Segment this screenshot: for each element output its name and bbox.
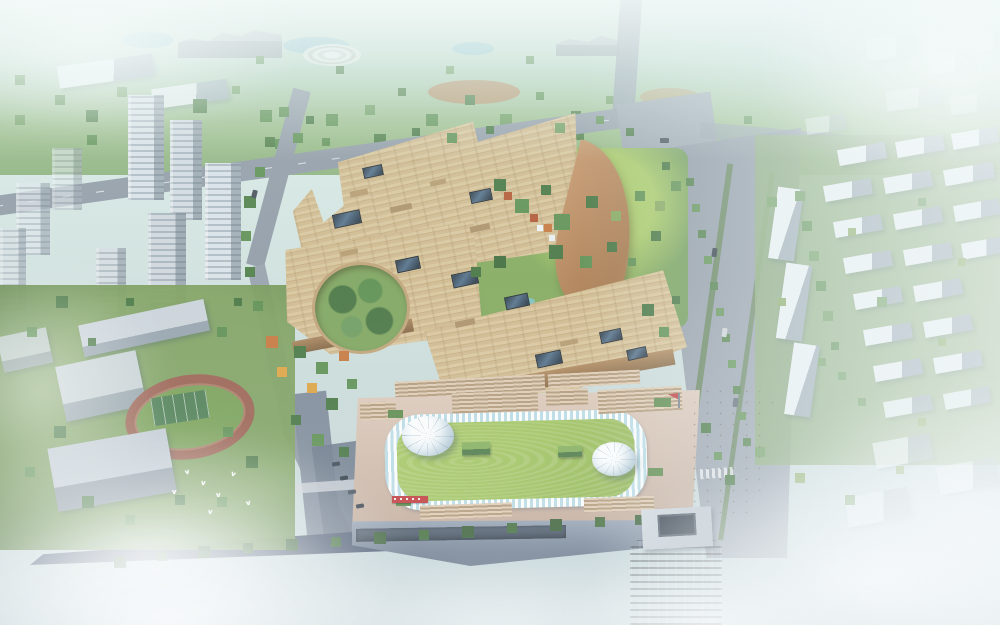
plaza-dome-east xyxy=(592,442,636,476)
tower-farleft-3 xyxy=(52,148,82,210)
lawn-pavilion-1 xyxy=(462,442,490,456)
car xyxy=(251,190,258,199)
car xyxy=(660,138,669,143)
tower-left-2 xyxy=(170,120,202,220)
park-playground xyxy=(428,80,520,104)
red-banner xyxy=(392,496,428,503)
plaza-dome-west xyxy=(402,416,454,456)
park-lake-east xyxy=(452,42,494,55)
lawn-pavilion-2 xyxy=(558,446,582,458)
aerial-rendering-scene: v v v v v v v xyxy=(0,0,1000,625)
park-circular-plaza xyxy=(303,44,361,66)
tower-left-3 xyxy=(205,163,241,280)
courtyard-circle-garden xyxy=(312,262,410,354)
flag-pole xyxy=(678,393,680,408)
planter xyxy=(388,410,403,418)
podium-steps-north-1 xyxy=(452,391,539,414)
planter xyxy=(648,468,663,476)
planter xyxy=(654,398,671,407)
podium-steps-north-2 xyxy=(546,388,589,405)
